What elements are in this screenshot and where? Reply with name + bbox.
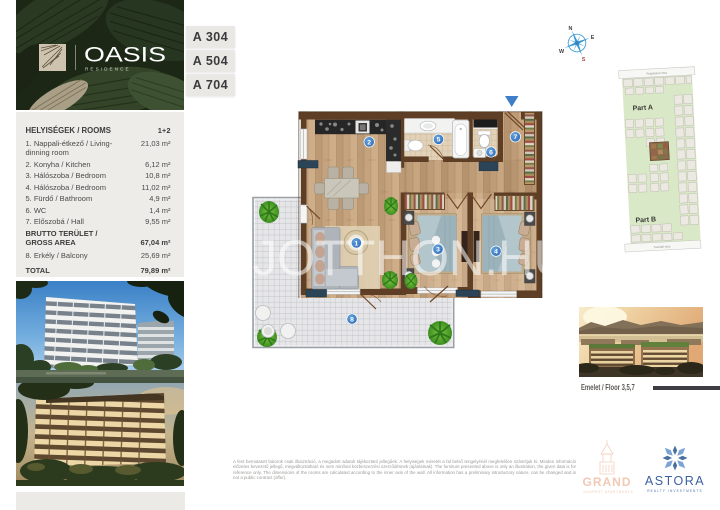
svg-text:BUDAPEST APARTMENTS: BUDAPEST APARTMENTS [583,490,633,494]
svg-text:Part A: Part A [632,104,653,112]
svg-text:REALTY INVESTMENTS: REALTY INVESTMENTS [647,489,702,493]
svg-text:Part B: Part B [635,216,656,224]
svg-text:GRAND: GRAND [583,475,632,489]
svg-text:ASTORA: ASTORA [645,474,705,488]
